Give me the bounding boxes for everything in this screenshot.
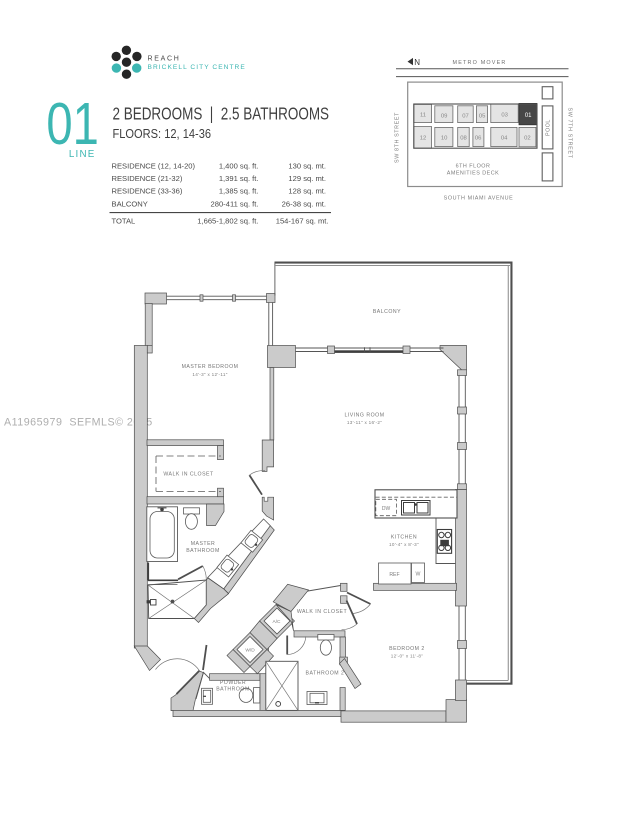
- svg-text:04: 04: [501, 136, 508, 142]
- svg-text:LIVING ROOM: LIVING ROOM: [344, 413, 384, 419]
- svg-text:12'-0" x 11'-8": 12'-0" x 11'-8": [391, 654, 423, 659]
- svg-text:MASTER BEDROOM: MASTER BEDROOM: [182, 364, 239, 370]
- svg-text:14'-3" x 12'-11": 14'-3" x 12'-11": [192, 372, 227, 377]
- svg-text:REACH: REACH: [148, 56, 181, 63]
- svg-text:LINE: LINE: [69, 149, 96, 160]
- svg-text:154-167 sq. mt.: 154-167 sq. mt.: [276, 216, 329, 225]
- svg-text:11: 11: [420, 113, 426, 119]
- svg-text:6TH FLOOR: 6TH FLOOR: [456, 164, 491, 170]
- svg-text:12: 12: [420, 136, 427, 142]
- svg-text:TOTAL: TOTAL: [112, 216, 136, 225]
- svg-text:08: 08: [460, 136, 467, 142]
- svg-text:POWDER: POWDER: [220, 680, 246, 686]
- svg-text:KITCHEN: KITCHEN: [391, 535, 417, 541]
- svg-text:BATHROOM: BATHROOM: [216, 687, 250, 693]
- svg-text:FLOORS: 12, 14-36: FLOORS: 12, 14-36: [113, 126, 212, 141]
- svg-text:POOL: POOL: [546, 119, 552, 136]
- svg-text:01: 01: [46, 92, 98, 157]
- svg-text:13'-11" x 16'-2": 13'-11" x 16'-2": [347, 420, 382, 425]
- svg-text:07: 07: [462, 114, 469, 120]
- svg-text:W/D: W/D: [245, 648, 255, 654]
- svg-text:1,400 sq. ft.: 1,400 sq. ft.: [219, 161, 259, 170]
- svg-text:BALCONY: BALCONY: [373, 309, 401, 315]
- svg-text:W: W: [416, 572, 421, 578]
- svg-text:128 sq. mt.: 128 sq. mt.: [288, 187, 326, 196]
- svg-text:MASTER: MASTER: [191, 541, 216, 547]
- svg-text:N: N: [414, 58, 420, 67]
- svg-text:SW 8TH STREET: SW 8TH STREET: [395, 112, 401, 163]
- svg-text:RESIDENCE (33-36): RESIDENCE (33-36): [112, 187, 183, 196]
- svg-text:SW 7TH STREET: SW 7TH STREET: [566, 108, 572, 159]
- svg-text:01: 01: [525, 113, 532, 119]
- svg-text:BRICKELL CITY CENTRE: BRICKELL CITY CENTRE: [148, 64, 246, 71]
- svg-text:280-411 sq. ft.: 280-411 sq. ft.: [211, 200, 259, 209]
- svg-text:26-38 sq. mt.: 26-38 sq. mt.: [282, 200, 326, 209]
- svg-text:AMENITIES DECK: AMENITIES DECK: [447, 171, 500, 177]
- svg-text:BATHROOM 2: BATHROOM 2: [306, 671, 345, 677]
- svg-text:BATHROOM: BATHROOM: [186, 548, 220, 554]
- svg-text:130 sq. mt.: 130 sq. mt.: [288, 161, 326, 170]
- svg-text:A/C: A/C: [273, 619, 282, 625]
- svg-text:METRO MOVER: METRO MOVER: [453, 60, 507, 66]
- svg-text:03: 03: [501, 113, 508, 119]
- svg-text:10'-4" x 8'-3": 10'-4" x 8'-3": [389, 542, 419, 547]
- svg-text:06: 06: [475, 136, 482, 142]
- svg-text:WALK IN CLOSET: WALK IN CLOSET: [297, 609, 348, 615]
- svg-text:RESIDENCE (12, 14-20): RESIDENCE (12, 14-20): [112, 161, 196, 170]
- svg-text:1,391 sq. ft.: 1,391 sq. ft.: [219, 174, 259, 183]
- svg-text:1,665-1,802 sq. ft.: 1,665-1,802 sq. ft.: [197, 216, 258, 225]
- svg-text:BALCONY: BALCONY: [112, 200, 148, 209]
- svg-text:SOUTH MIAMI AVENUE: SOUTH MIAMI AVENUE: [444, 196, 514, 202]
- svg-text:02: 02: [524, 136, 531, 142]
- svg-text:05: 05: [479, 114, 486, 120]
- svg-text:2 BEDROOMS | 2.5 BATHROOMS: 2 BEDROOMS | 2.5 BATHROOMS: [113, 105, 330, 124]
- svg-text:RESIDENCE (21-32): RESIDENCE (21-32): [112, 174, 183, 183]
- svg-text:DW: DW: [382, 506, 391, 512]
- svg-text:10: 10: [441, 136, 448, 142]
- svg-text:REF: REF: [389, 572, 399, 578]
- svg-text:WALK IN CLOSET: WALK IN CLOSET: [163, 472, 214, 478]
- svg-text:09: 09: [441, 114, 448, 120]
- svg-text:A11965979 SEFMLS© 2025: A11965979 SEFMLS© 2025: [4, 417, 153, 429]
- svg-text:1,385 sq. ft.: 1,385 sq. ft.: [219, 187, 259, 196]
- svg-text:BEDROOM 2: BEDROOM 2: [389, 646, 425, 652]
- svg-text:129 sq. mt.: 129 sq. mt.: [288, 174, 326, 183]
